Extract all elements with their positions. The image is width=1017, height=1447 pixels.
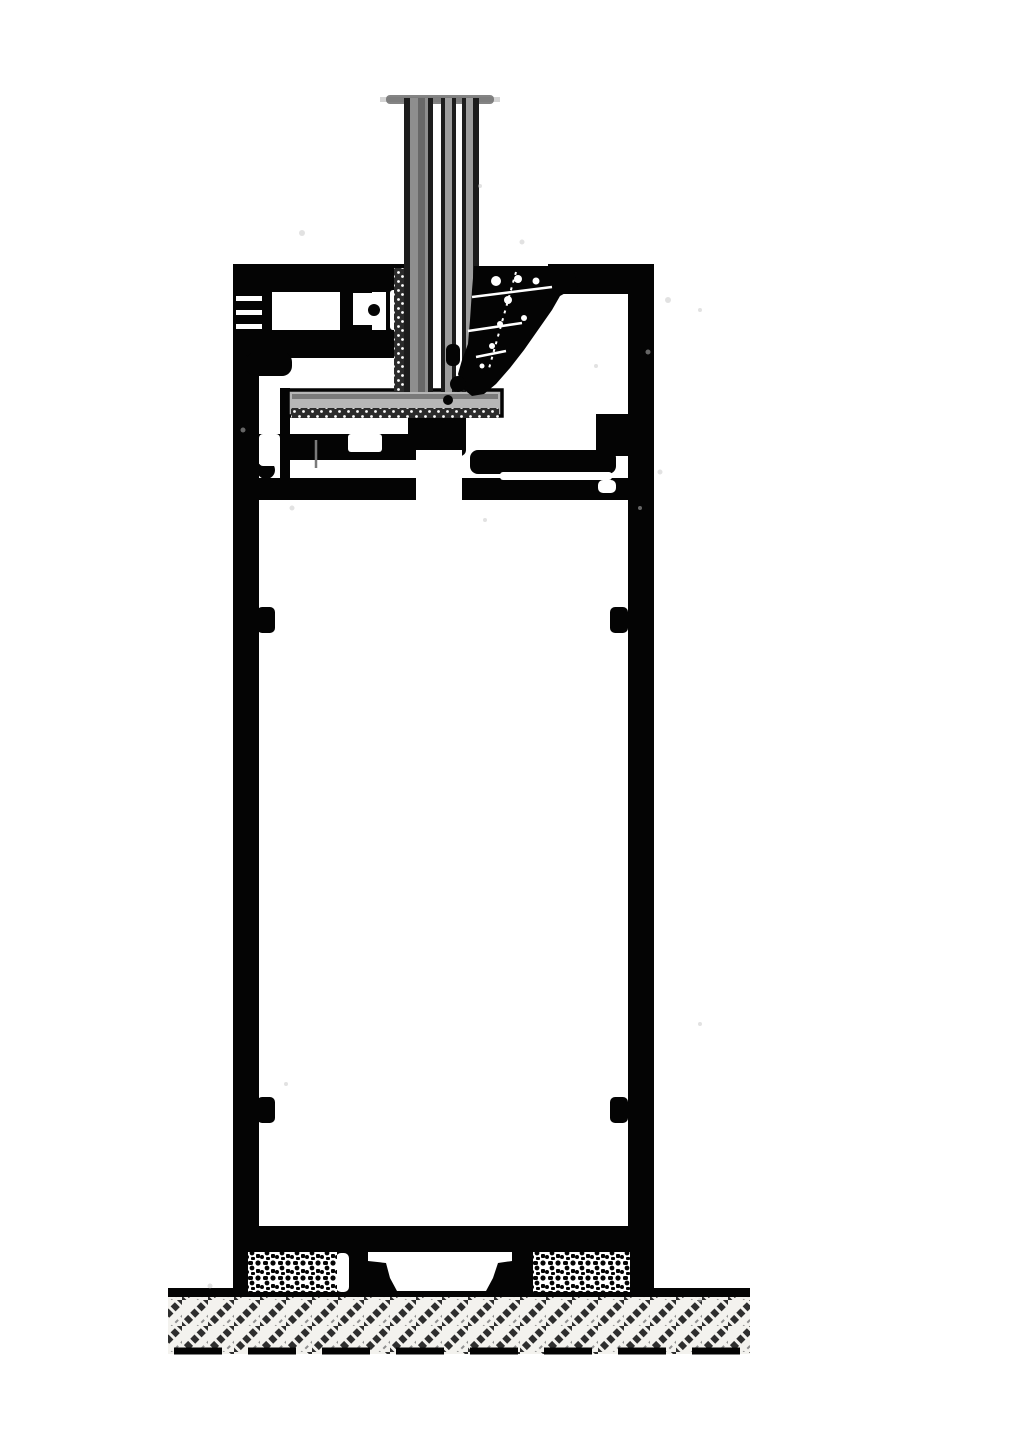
ridge-slot xyxy=(236,296,262,301)
screw-boss-tab xyxy=(257,607,275,633)
setting-block-shade xyxy=(292,394,498,399)
section-drawing xyxy=(0,0,1017,1447)
wedge-hook xyxy=(450,376,466,392)
head-slot xyxy=(500,472,612,480)
box-left-wall xyxy=(233,264,259,1293)
screw-boss-tab xyxy=(610,1097,628,1123)
rebate-side-slot xyxy=(259,434,280,466)
ridge-slot xyxy=(236,310,262,315)
pane-edge xyxy=(404,98,410,392)
setting-block-underside xyxy=(291,408,499,418)
box-bottom-wall xyxy=(233,1226,654,1250)
glazing-gasket-strip xyxy=(394,268,405,392)
drawing-canvas xyxy=(0,0,1017,1447)
pane-core-stripe xyxy=(418,98,425,392)
screw-boss-tab xyxy=(257,1097,275,1123)
floor-slab xyxy=(168,1288,750,1354)
head-mid-bar xyxy=(470,450,616,474)
wedge-hook xyxy=(443,395,453,405)
slab-hatch-body xyxy=(168,1292,750,1354)
wedge-hook xyxy=(446,344,460,366)
foam-seal-right xyxy=(533,1252,630,1292)
screw-channel-dot xyxy=(368,304,380,316)
screw-boss-tab xyxy=(610,607,628,633)
head-step-block xyxy=(596,414,634,456)
ridge-slot xyxy=(236,324,262,329)
bead-foot xyxy=(246,352,292,376)
pane-edge xyxy=(428,98,433,392)
head-notch xyxy=(598,480,616,493)
glass-foot-block xyxy=(408,412,466,456)
drainage-channel xyxy=(416,450,462,502)
foam-seal-left xyxy=(248,1252,337,1292)
base-sliver xyxy=(336,1253,349,1292)
rebate-notch xyxy=(348,434,382,452)
